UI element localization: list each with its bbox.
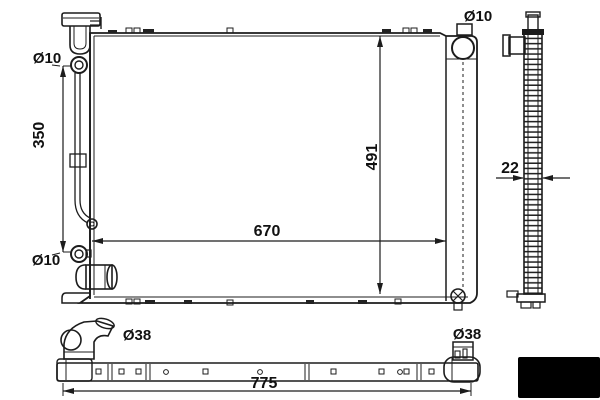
hole-bottom-left-label: Ø10 [32, 252, 60, 269]
drawing-svg: 670 491 350 Ø10 Ø10 Ø10 [0, 0, 600, 400]
dimension-overall-length: 775 [63, 375, 471, 396]
lower-hose-stub [76, 265, 117, 289]
dimension-left-span: 350 [31, 66, 72, 252]
left-pipe-label: Ø38 [123, 327, 151, 344]
dimension-core-height: 491 [364, 36, 383, 294]
dimension-core-width: 670 [92, 223, 446, 244]
top-left-hole [71, 57, 87, 73]
hole-top-right-label: Ø10 [464, 8, 492, 25]
hole-top-left-label: Ø10 [33, 50, 61, 67]
core-width-label: 670 [254, 223, 281, 240]
nrf-logo-box [518, 357, 600, 398]
top-right-hole [452, 37, 474, 59]
bottom-clips [126, 299, 401, 305]
right-pipe-label: Ø38 [453, 326, 481, 343]
overall-length-label: 775 [251, 375, 278, 392]
side-view: 22 [496, 12, 570, 308]
bottom-view: Ø38 Ø38 775 [57, 316, 481, 396]
side-bottom-foot [507, 291, 545, 308]
left-elbow-pipe [61, 316, 115, 359]
thickness-label: 22 [501, 160, 519, 177]
drain-plug [451, 289, 465, 310]
top-right-stub [457, 24, 472, 35]
core-fins [524, 34, 542, 294]
right-outlet-fitting [444, 342, 480, 382]
radiator-technical-drawing: 670 491 350 Ø10 Ø10 Ø10 [0, 0, 600, 400]
left-span-label: 350 [31, 122, 48, 149]
front-view [62, 13, 477, 310]
side-pipe-stub [503, 35, 525, 56]
overflow-tube [70, 73, 97, 229]
core-height-label: 491 [364, 144, 381, 171]
bottom-left-hole [71, 246, 91, 262]
